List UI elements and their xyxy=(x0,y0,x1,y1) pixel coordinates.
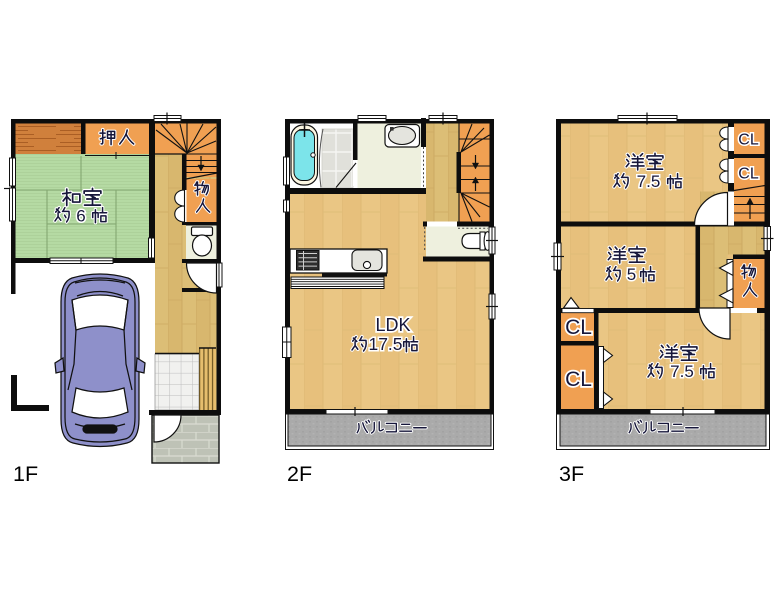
svg-text:6: 6 xyxy=(76,207,85,226)
svg-text:7.5: 7.5 xyxy=(670,362,694,381)
svg-text:3F: 3F xyxy=(559,462,584,486)
svg-text:17.5: 17.5 xyxy=(368,334,402,354)
svg-text:1F: 1F xyxy=(13,462,38,486)
svg-text:LDK: LDK xyxy=(375,315,410,335)
svg-text:CL: CL xyxy=(738,132,759,149)
svg-text:2F: 2F xyxy=(287,462,312,486)
svg-text:7.5: 7.5 xyxy=(637,172,661,191)
svg-text:CL: CL xyxy=(738,166,759,183)
svg-text:CL: CL xyxy=(565,368,592,391)
svg-text:5: 5 xyxy=(627,265,636,284)
svg-text:CL: CL xyxy=(565,316,592,339)
